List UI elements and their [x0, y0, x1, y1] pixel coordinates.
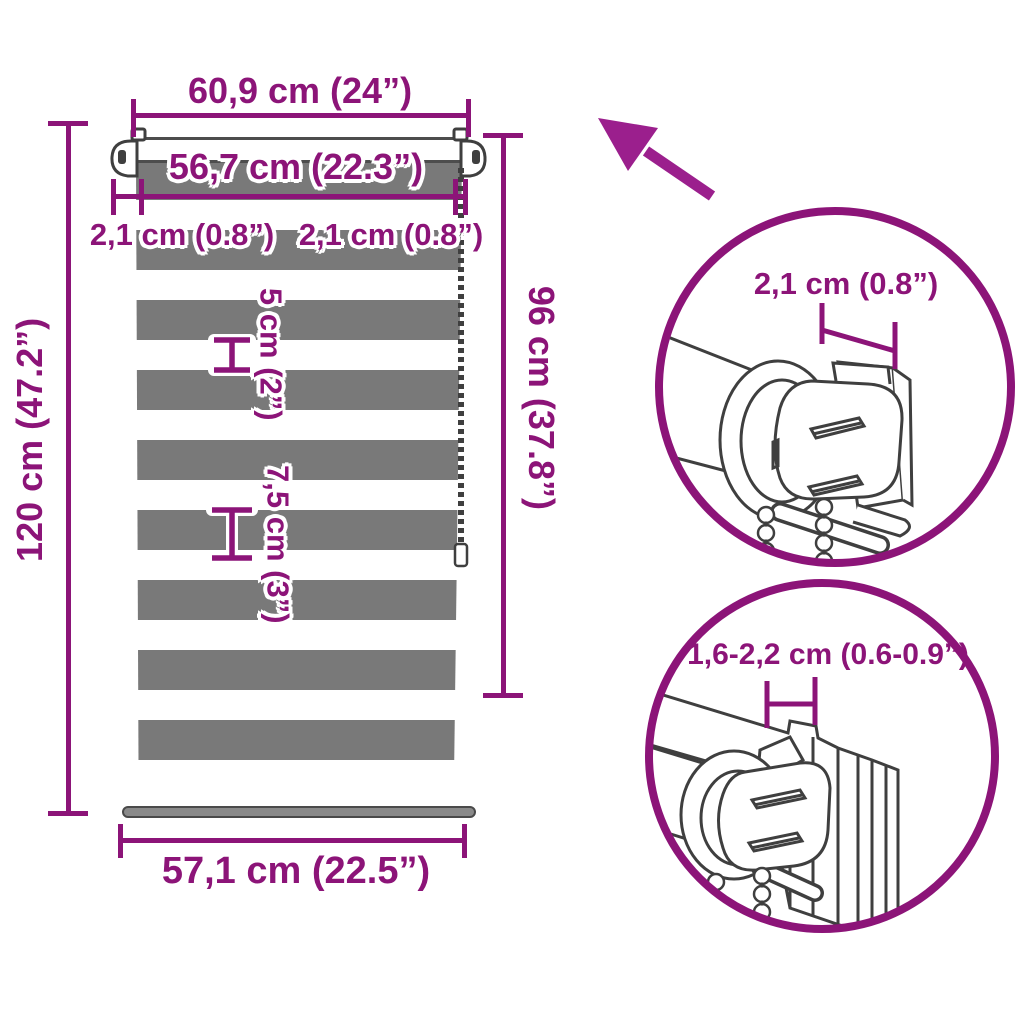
total-height-label: 120 cm (47.2”) — [11, 230, 49, 650]
dim-tick — [48, 121, 88, 126]
sheer-stripe-label: 5 cm (2”) — [254, 254, 287, 454]
direction-arrow-icon — [598, 118, 712, 196]
dim-line-inner-width — [114, 194, 468, 199]
bracket-detail-label: 2,1 cm (0.8”) — [646, 268, 1024, 301]
inner-width-label: 56,7 cm (22.3”) — [96, 148, 496, 186]
dim-tick — [483, 693, 523, 698]
top-width-label: 60,9 cm (24”) — [100, 72, 500, 110]
dim-tick — [483, 133, 523, 138]
dim-tick — [48, 811, 88, 816]
fabric-height-label: 96 cm (37.8”) — [522, 188, 560, 608]
dim-line-top-width — [133, 113, 470, 118]
bottom-width-label: 57,1 cm (22.5”) — [96, 852, 496, 892]
dim-line-bottom-width — [120, 838, 465, 843]
right-offset-label: 2,1 cm (0.8”) — [241, 219, 541, 252]
clamp-detail-label: 1,6-2,2 cm (0.6-0.9”) — [628, 639, 1024, 671]
opaque-stripe-label: 7,5 cm (3”) — [261, 429, 294, 659]
sheer-stripe-marker — [214, 340, 250, 370]
opaque-stripe-marker — [212, 510, 252, 558]
zebra-blind-dimension-diagram: 60,9 cm (24”) 56,7 cm (22.3”) 2,1 cm (0.… — [0, 0, 1024, 1024]
